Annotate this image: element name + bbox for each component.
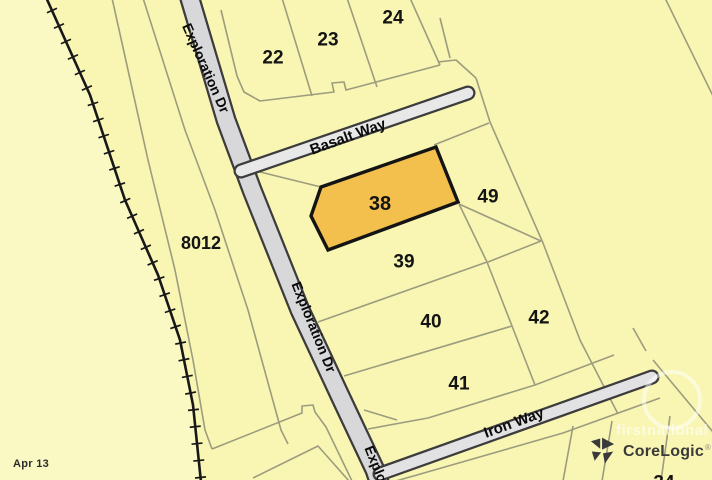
lot-label-42: 42 <box>528 308 549 329</box>
map-canvas[interactable]: 382223248012493940424134Exploration DrEx… <box>0 0 712 480</box>
lot-label-38: 38 <box>369 193 391 215</box>
lot-label-22: 22 <box>262 48 283 69</box>
lot-label-41: 41 <box>448 374 470 395</box>
lot-label-23: 23 <box>317 30 338 51</box>
corelogic-cube-icon <box>590 437 616 466</box>
corelogic-name: CoreLogic <box>623 443 704 460</box>
lot-label-34: 34 <box>653 473 675 480</box>
lot-label-8012: 8012 <box>181 233 221 253</box>
lot-label-39: 39 <box>393 252 414 273</box>
map-stage[interactable]: 382223248012493940424134Exploration DrEx… <box>0 0 712 480</box>
railway-tick <box>193 460 204 461</box>
lot-label-40: 40 <box>420 312 441 333</box>
railway-tick <box>190 426 201 427</box>
railway-tick <box>188 409 199 410</box>
registered-mark: ® <box>705 443 711 452</box>
railway-tick <box>192 443 203 444</box>
lot-label-49: 49 <box>477 187 498 208</box>
lot-label-24: 24 <box>382 8 404 29</box>
corelogic-logo: CoreLogic® <box>590 437 711 466</box>
railway-tick <box>195 477 206 478</box>
map-date-label: Apr 13 <box>13 458 49 470</box>
